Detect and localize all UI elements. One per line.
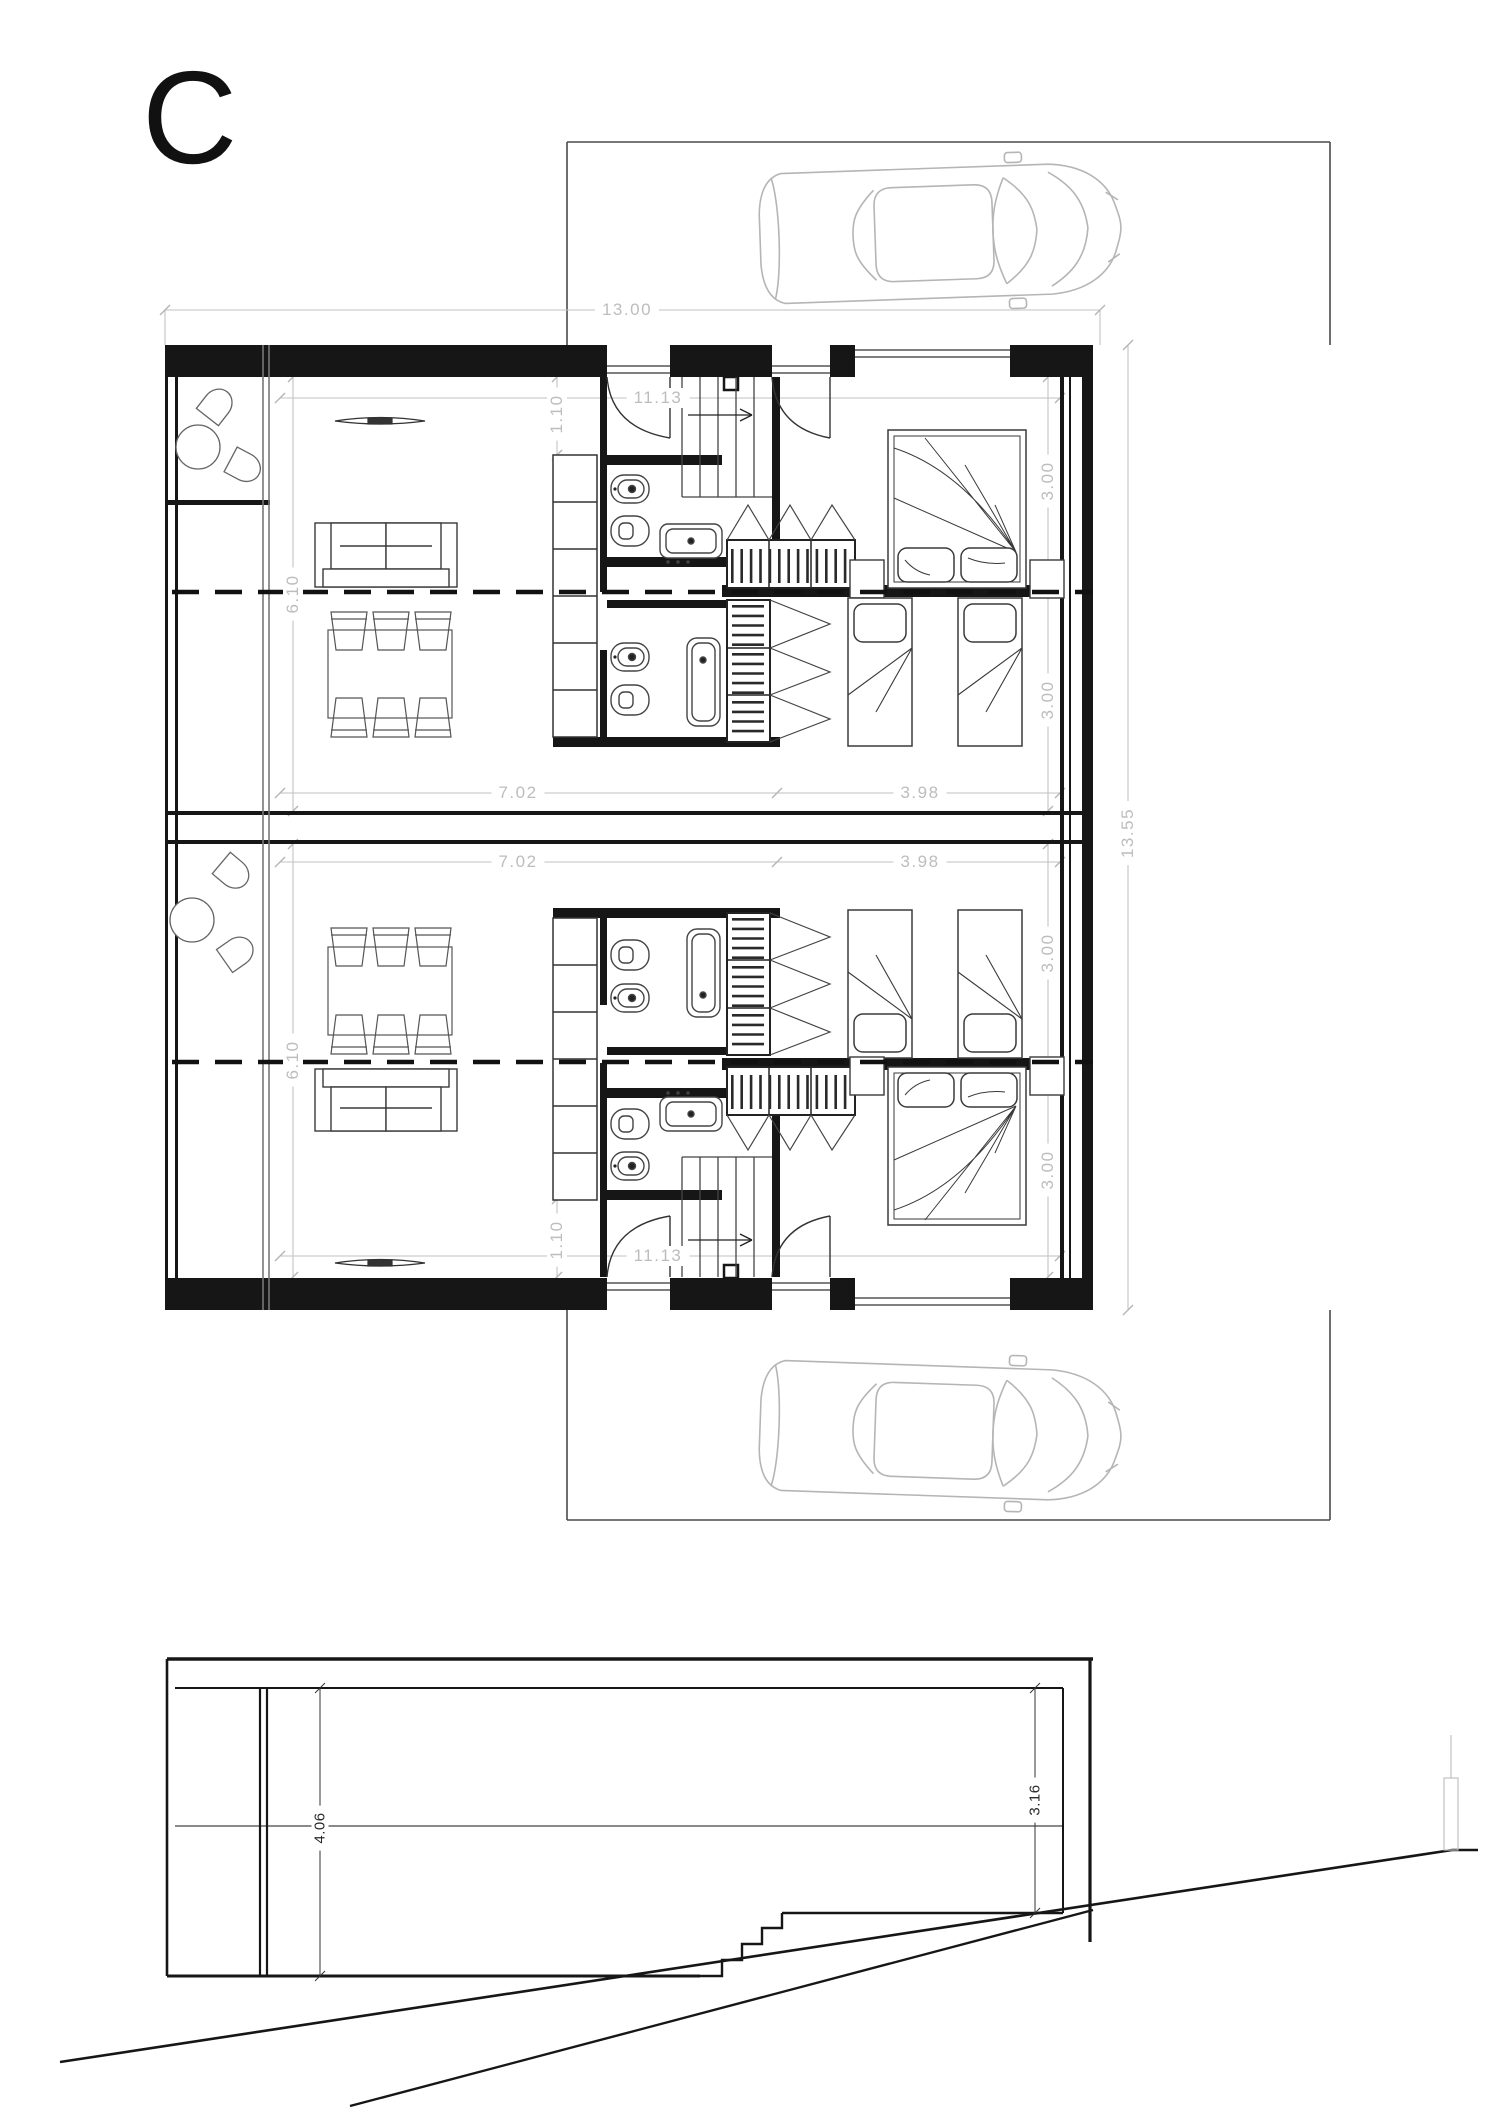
sofa-unit2 [315,1069,457,1131]
toilet [611,1109,649,1139]
kitchen-counter-unit2 [553,918,597,1200]
parking-area-top [567,142,1330,345]
sofa-unit1 [315,523,457,587]
stair-direction-arrow-icon [688,1234,752,1246]
bathroom-unit2-upper [611,929,720,1017]
double-bed-unit2 [888,1067,1026,1225]
dim-interior-width: 11.13 [627,1246,690,1266]
bidet [611,984,649,1012]
dim-living-width: 7.02 [491,852,544,872]
doors [607,377,830,1277]
terrace-glazing [263,345,269,1310]
stair-direction-arrow-icon [688,409,752,421]
floor-plan-drawing [0,0,1500,2121]
wardrobe-door-flaps [770,913,830,1055]
bathroom-unit2-lower [611,1091,722,1180]
car-icon [757,149,1123,318]
boundary-post-icon [1444,1735,1458,1850]
wardrobe-door-flaps [770,600,830,742]
dim-entry-depth: 1.10 [547,1213,567,1266]
single-beds-unit2 [848,910,1022,1058]
dim-bedroom-depth: 3.00 [1038,454,1058,507]
drawing-sheet: C [0,0,1500,2121]
bidet [611,643,649,671]
patio-table [176,425,220,469]
toilet [611,940,649,970]
bidet [611,475,649,503]
dim-bedroom-depth: 3.00 [1038,926,1058,979]
dining-set-unit2 [328,928,452,1054]
section-drawing [60,1659,1478,2106]
bathtub [687,929,720,1017]
dim-bedroom-depth: 3.00 [1038,1143,1058,1196]
sink [660,524,722,564]
wardrobe-door-flaps [727,505,855,540]
wardrobe-door-flaps [727,1115,855,1150]
dim-entry-depth: 1.10 [547,387,567,440]
parking-area-bottom [567,1310,1330,1520]
wardrobe-unit1-bedroom1 [727,505,855,588]
patio-set-unit1 [176,383,265,487]
wardrobe-unit2-bedroom2 [727,913,830,1055]
section-steps [700,1913,782,1976]
dim-bedroom-depth: 3.00 [1038,673,1058,726]
car-icon [757,1347,1123,1516]
dim-living-width: 7.02 [491,783,544,803]
patio-table [170,898,214,942]
staircase-unit1 [682,377,772,497]
dining-set-unit1 [328,612,452,737]
double-bed-unit1 [888,430,1026,588]
dim-interior-width: 11.13 [627,388,690,408]
bathtub [687,638,720,726]
patio-set-unit2 [170,852,259,972]
kitchen-counter-unit1 [553,455,597,737]
single-beds-unit1 [848,598,1022,746]
tv-sideboard [335,418,425,425]
terrain-line [350,1910,1093,2106]
staircase-unit2 [682,1157,772,1277]
dim-living-depth: 6.10 [283,567,303,620]
bidet [611,1152,649,1180]
bathroom-unit1-lower [611,638,720,726]
bathroom-unit1-upper [611,475,722,564]
tv-sideboard [335,1260,425,1267]
dim-bedroom-width: 3.98 [893,783,946,803]
dim-section-total-height: 4.06 [312,1805,329,1850]
dim-overall-width: 13.00 [595,300,659,320]
wardrobe-unit2-bedroom1 [727,1067,855,1150]
sink [660,1091,722,1131]
dim-section-clear-height: 3.16 [1027,1777,1044,1822]
dim-living-depth: 6.10 [283,1033,303,1086]
terrain-line [60,1850,1452,2062]
toilet [611,685,649,715]
wardrobe-unit1-bedroom2 [727,600,830,742]
dim-bedroom-width: 3.98 [893,852,946,872]
dim-overall-depth: 13.55 [1118,801,1138,865]
toilet [611,516,649,546]
